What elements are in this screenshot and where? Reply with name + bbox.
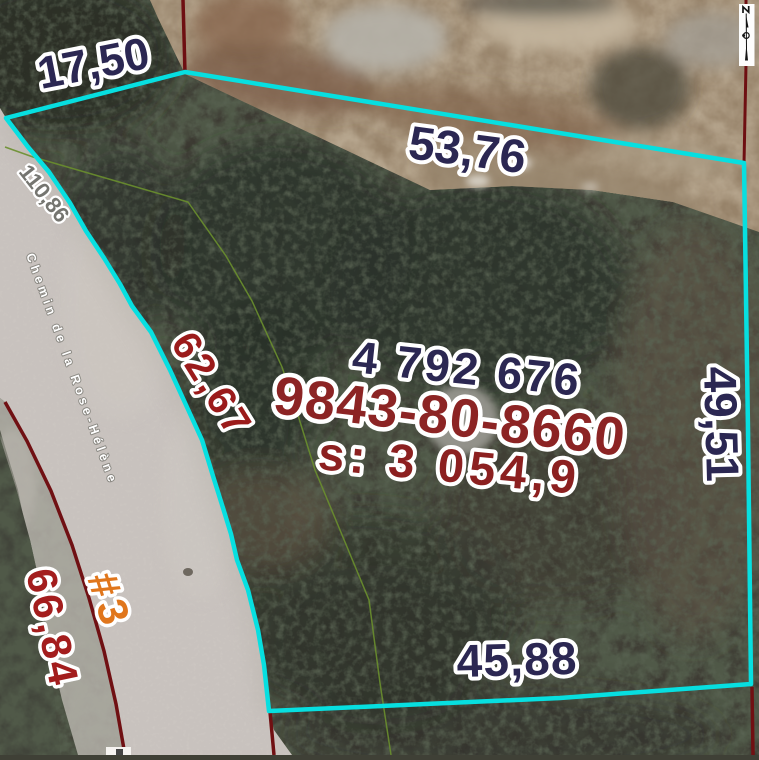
svg-text:45,88: 45,88 bbox=[456, 632, 578, 687]
svg-text:49,51: 49,51 bbox=[694, 366, 749, 482]
